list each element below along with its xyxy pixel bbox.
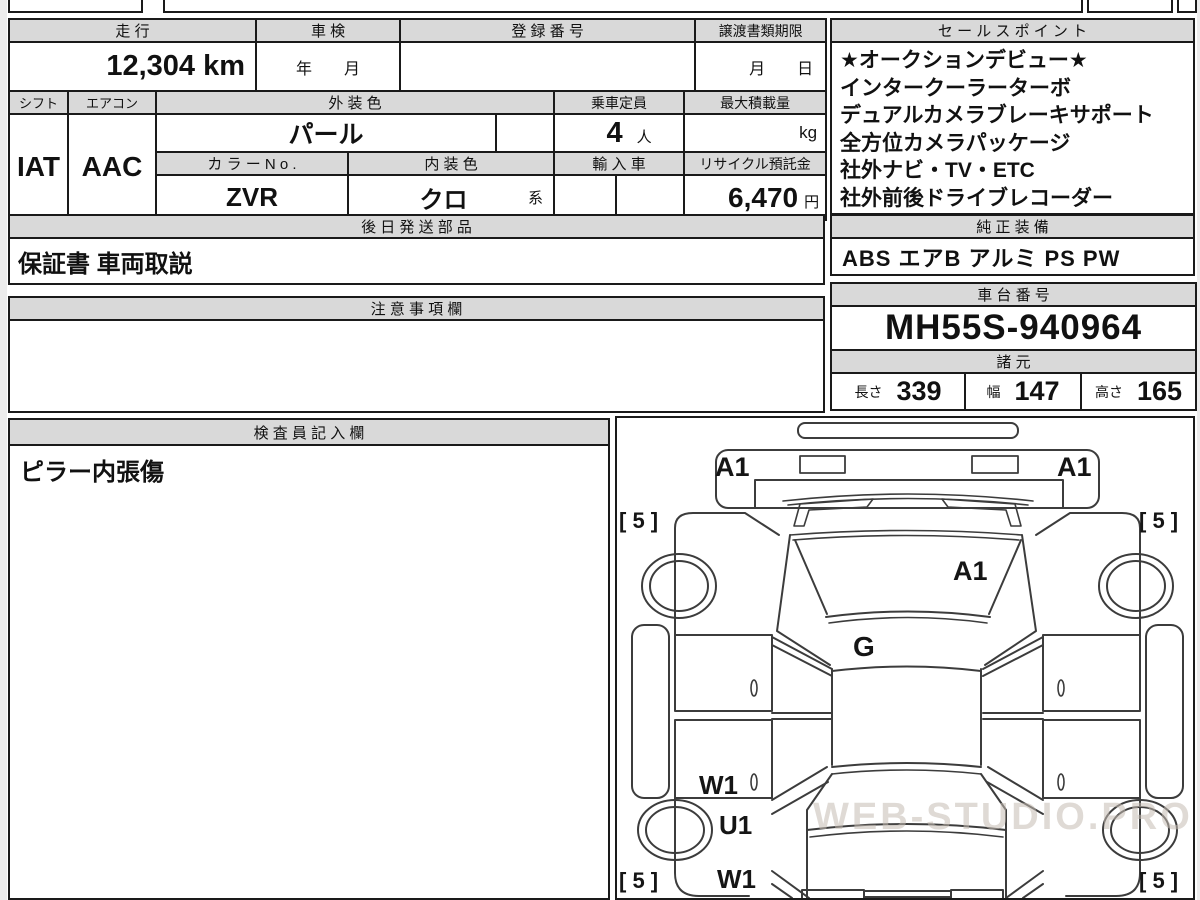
sales-point-line: ★オークションデビュー★ xyxy=(832,47,1193,75)
max-load-header: 最大積載量 xyxy=(684,91,826,114)
spec-width-value: 147 xyxy=(1014,376,1059,407)
damage-label-a1-front-left: A1 xyxy=(715,452,750,483)
mileage-header: 走 行 xyxy=(9,19,256,42)
exterior-color-header: 外 装 色 xyxy=(156,91,554,114)
chassis-header: 車 台 番 号 xyxy=(831,283,1196,306)
sales-point-line: 社外前後ドライブレコーダー xyxy=(832,185,1193,213)
capacity-header: 乗車定員 xyxy=(554,91,684,114)
damage-label-u1-rear: U1 xyxy=(719,810,752,841)
registration-header: 登 録 番 号 xyxy=(400,19,695,42)
spec-height-label: 高さ xyxy=(1095,382,1123,402)
capacity-cell: 4 人 xyxy=(554,114,684,152)
tread-depth-bottom-left: [ 5 ] xyxy=(619,868,658,894)
shift-value: IAT xyxy=(9,114,68,220)
sales-point-line: 社外ナビ・TV・ETC xyxy=(832,157,1193,185)
spec-width-cell: 幅 147 xyxy=(965,373,1081,410)
vehicle-info-table: 走 行 車 検 登 録 番 号 譲渡書類期限 12,304 km 年 月 月 日… xyxy=(8,18,827,221)
notes-box: 注 意 事 項 欄 xyxy=(8,296,825,413)
interior-color-value: クロ xyxy=(359,180,528,215)
damage-label-w1-lower: W1 xyxy=(717,864,756,895)
inspector-content: ピラー内張傷 xyxy=(9,445,609,899)
top-partial-cell xyxy=(8,0,143,13)
spec-width-label: 幅 xyxy=(986,382,1000,402)
watermark: WEB-STUDIO.PRO xyxy=(813,796,1193,839)
exterior-color-extra-cell xyxy=(496,114,554,152)
spec-length-label: 長さ xyxy=(854,382,882,402)
specs-header: 諸 元 xyxy=(831,350,1196,373)
sales-point-line: デュアルカメラブレーキサポート xyxy=(832,102,1193,130)
tread-depth-top-left: [ 5 ] xyxy=(619,508,658,534)
interior-color-header: 内 装 色 xyxy=(348,152,554,175)
sales-point-line: 全方位カメラパッケージ xyxy=(832,130,1193,158)
inspector-header: 検 査 員 記 入 欄 xyxy=(9,419,609,445)
spec-length-cell: 長さ 339 xyxy=(831,373,965,410)
sales-point-line: インタークーラーターボ xyxy=(832,75,1193,103)
aircon-header: エアコン xyxy=(68,91,156,114)
top-partial-cell xyxy=(1177,0,1197,13)
mileage-value: 12,304 km xyxy=(9,42,256,91)
inspector-box: 検 査 員 記 入 欄 ピラー内張傷 xyxy=(8,418,610,900)
sales-point-box: セ ー ル ス ポ イ ン ト ★オークションデビュー★ インタークーラーターボ… xyxy=(830,18,1195,215)
shift-header: シフト xyxy=(9,91,68,114)
car-damage-diagram: WEB-STUDIO.PRO A1 A1 A1 G W1 U1 W1 [ 5 ]… xyxy=(615,416,1195,900)
spec-height-cell: 高さ 165 xyxy=(1081,373,1196,410)
recycle-deposit-header: リサイクル預託金 xyxy=(684,152,826,175)
genuine-equipment-box: 純 正 装 備 ABS エアB アルミ PS PW xyxy=(830,214,1195,276)
max-load-value: kg xyxy=(684,114,826,152)
recycle-deposit-value: 6,470 xyxy=(728,182,798,214)
registration-value xyxy=(400,42,695,91)
exterior-color-value: パール xyxy=(156,114,496,152)
genuine-equipment-content: ABS エアB アルミ PS PW xyxy=(831,238,1194,275)
recycle-deposit-unit: 円 xyxy=(804,191,819,212)
capacity-unit: 人 xyxy=(637,126,652,147)
damage-label-w1-upper: W1 xyxy=(699,770,738,801)
auction-sheet: 走 行 車 検 登 録 番 号 譲渡書類期限 12,304 km 年 月 月 日… xyxy=(0,0,1200,900)
later-parts-content: 保証書 車両取説 xyxy=(9,238,824,284)
chassis-number: MH55S-940964 xyxy=(831,306,1196,350)
inspection-date-placeholder: 年 月 xyxy=(256,42,400,91)
notes-header: 注 意 事 項 欄 xyxy=(9,297,824,320)
interior-color-suffix: 系 xyxy=(528,187,543,208)
sales-point-header: セ ー ル ス ポ イ ン ト xyxy=(831,19,1194,42)
genuine-equipment-header: 純 正 装 備 xyxy=(831,215,1194,238)
later-parts-box: 後 日 発 送 部 品 保証書 車両取説 xyxy=(8,214,825,285)
inspection-header: 車 検 xyxy=(256,19,400,42)
notes-content xyxy=(9,320,824,412)
chassis-box: 車 台 番 号 MH55S-940964 諸 元 長さ 339 幅 147 xyxy=(830,282,1197,411)
damage-label-a1-hood: A1 xyxy=(953,556,988,587)
later-parts-header: 後 日 発 送 部 品 xyxy=(9,215,824,238)
page-left-edge xyxy=(0,0,7,900)
import-car-header: 輸 入 車 xyxy=(554,152,684,175)
top-partial-cell xyxy=(163,0,1083,13)
tread-depth-bottom-right: [ 5 ] xyxy=(1139,868,1178,894)
deadline-placeholder: 月 日 xyxy=(695,42,826,91)
spec-length-value: 339 xyxy=(896,376,941,407)
damage-label-g-hood: G xyxy=(853,631,875,663)
color-no-header: カ ラ ー N o . xyxy=(156,152,348,175)
top-partial-cell xyxy=(1087,0,1173,13)
tread-depth-top-right: [ 5 ] xyxy=(1139,508,1178,534)
damage-label-a1-front-right: A1 xyxy=(1057,452,1092,483)
aircon-value: AAC xyxy=(68,114,156,220)
transfer-deadline-header: 譲渡書類期限 xyxy=(695,19,826,42)
capacity-value: 4 xyxy=(606,117,622,150)
sales-point-body: ★オークションデビュー★ インタークーラーターボ デュアルカメラブレーキサポート… xyxy=(831,42,1194,214)
spec-height-value: 165 xyxy=(1137,376,1182,407)
